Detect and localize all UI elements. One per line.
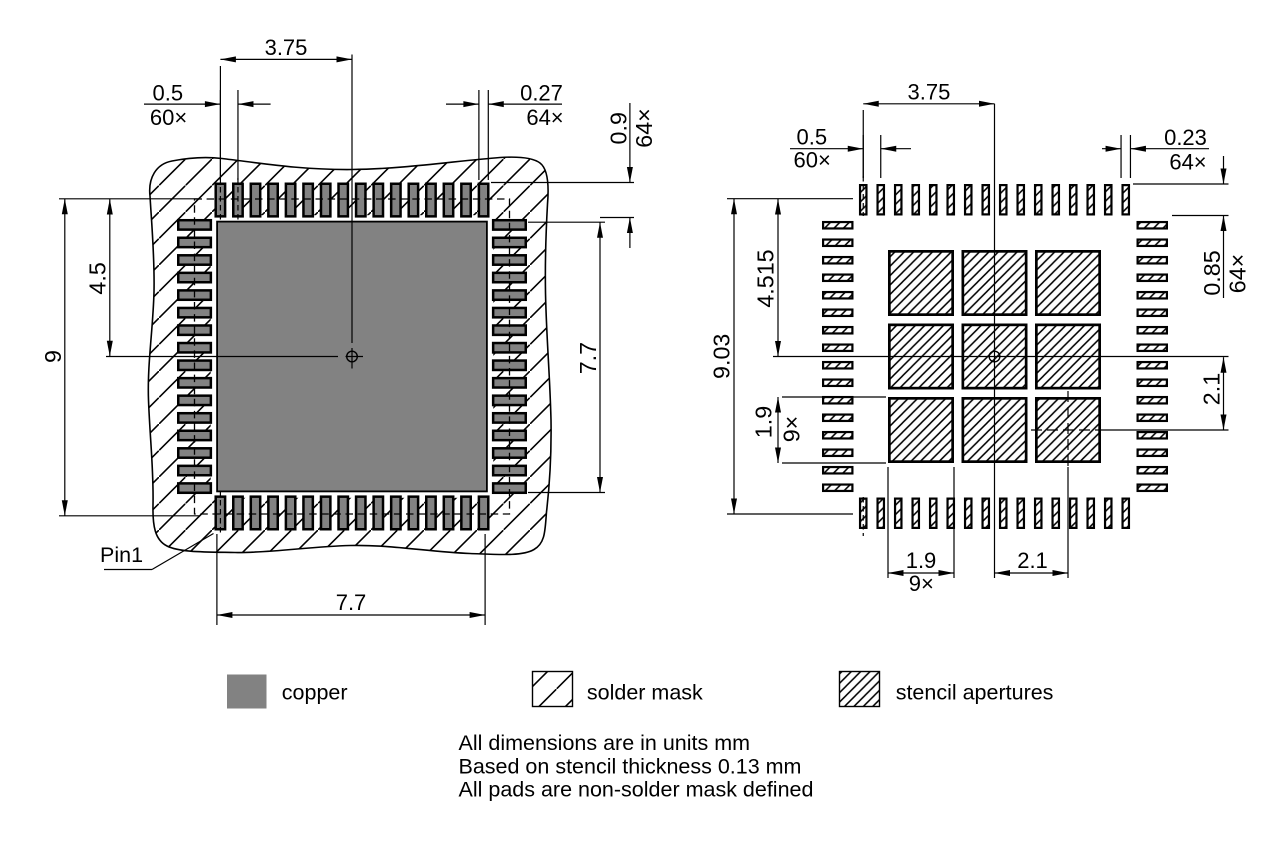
svg-text:0.27: 0.27 xyxy=(520,81,563,106)
svg-text:1.9: 1.9 xyxy=(751,406,777,438)
svg-text:0.23: 0.23 xyxy=(1164,125,1207,150)
svg-text:3.75: 3.75 xyxy=(907,79,950,104)
svg-text:60×: 60× xyxy=(794,148,831,173)
svg-text:4.5: 4.5 xyxy=(85,262,111,294)
svg-text:3.75: 3.75 xyxy=(265,35,308,60)
svg-text:0.85: 0.85 xyxy=(1199,250,1225,295)
svg-text:4.515: 4.515 xyxy=(753,249,779,307)
svg-text:9: 9 xyxy=(40,350,66,363)
svg-text:All pads are non-solder mask d: All pads are non-solder mask defined xyxy=(459,778,814,802)
svg-text:1.9: 1.9 xyxy=(906,548,937,573)
svg-text:9.03: 9.03 xyxy=(709,334,735,379)
svg-text:0.9: 0.9 xyxy=(606,112,632,144)
svg-text:64×: 64× xyxy=(526,105,563,130)
svg-text:All dimensions are in units mm: All dimensions are in units mm xyxy=(459,731,751,755)
svg-text:copper: copper xyxy=(282,680,348,704)
svg-text:solder mask: solder mask xyxy=(587,680,703,704)
svg-text:Pin1: Pin1 xyxy=(100,543,143,567)
svg-text:2.1: 2.1 xyxy=(1017,548,1048,573)
svg-text:64×: 64× xyxy=(1169,149,1206,174)
svg-text:7.7: 7.7 xyxy=(575,342,601,374)
svg-text:64×: 64× xyxy=(631,108,657,148)
svg-text:Based on stencil thickness 0.1: Based on stencil thickness 0.13 mm xyxy=(459,754,802,778)
svg-text:7.7: 7.7 xyxy=(336,590,367,615)
svg-text:0.5: 0.5 xyxy=(797,124,828,149)
svg-text:9×: 9× xyxy=(909,571,934,596)
svg-text:0.5: 0.5 xyxy=(153,80,184,105)
svg-text:2.1: 2.1 xyxy=(1199,373,1225,405)
svg-text:stencil apertures: stencil apertures xyxy=(896,680,1054,704)
svg-text:64×: 64× xyxy=(1224,254,1250,294)
svg-text:60×: 60× xyxy=(150,105,187,130)
svg-text:9×: 9× xyxy=(778,416,804,443)
